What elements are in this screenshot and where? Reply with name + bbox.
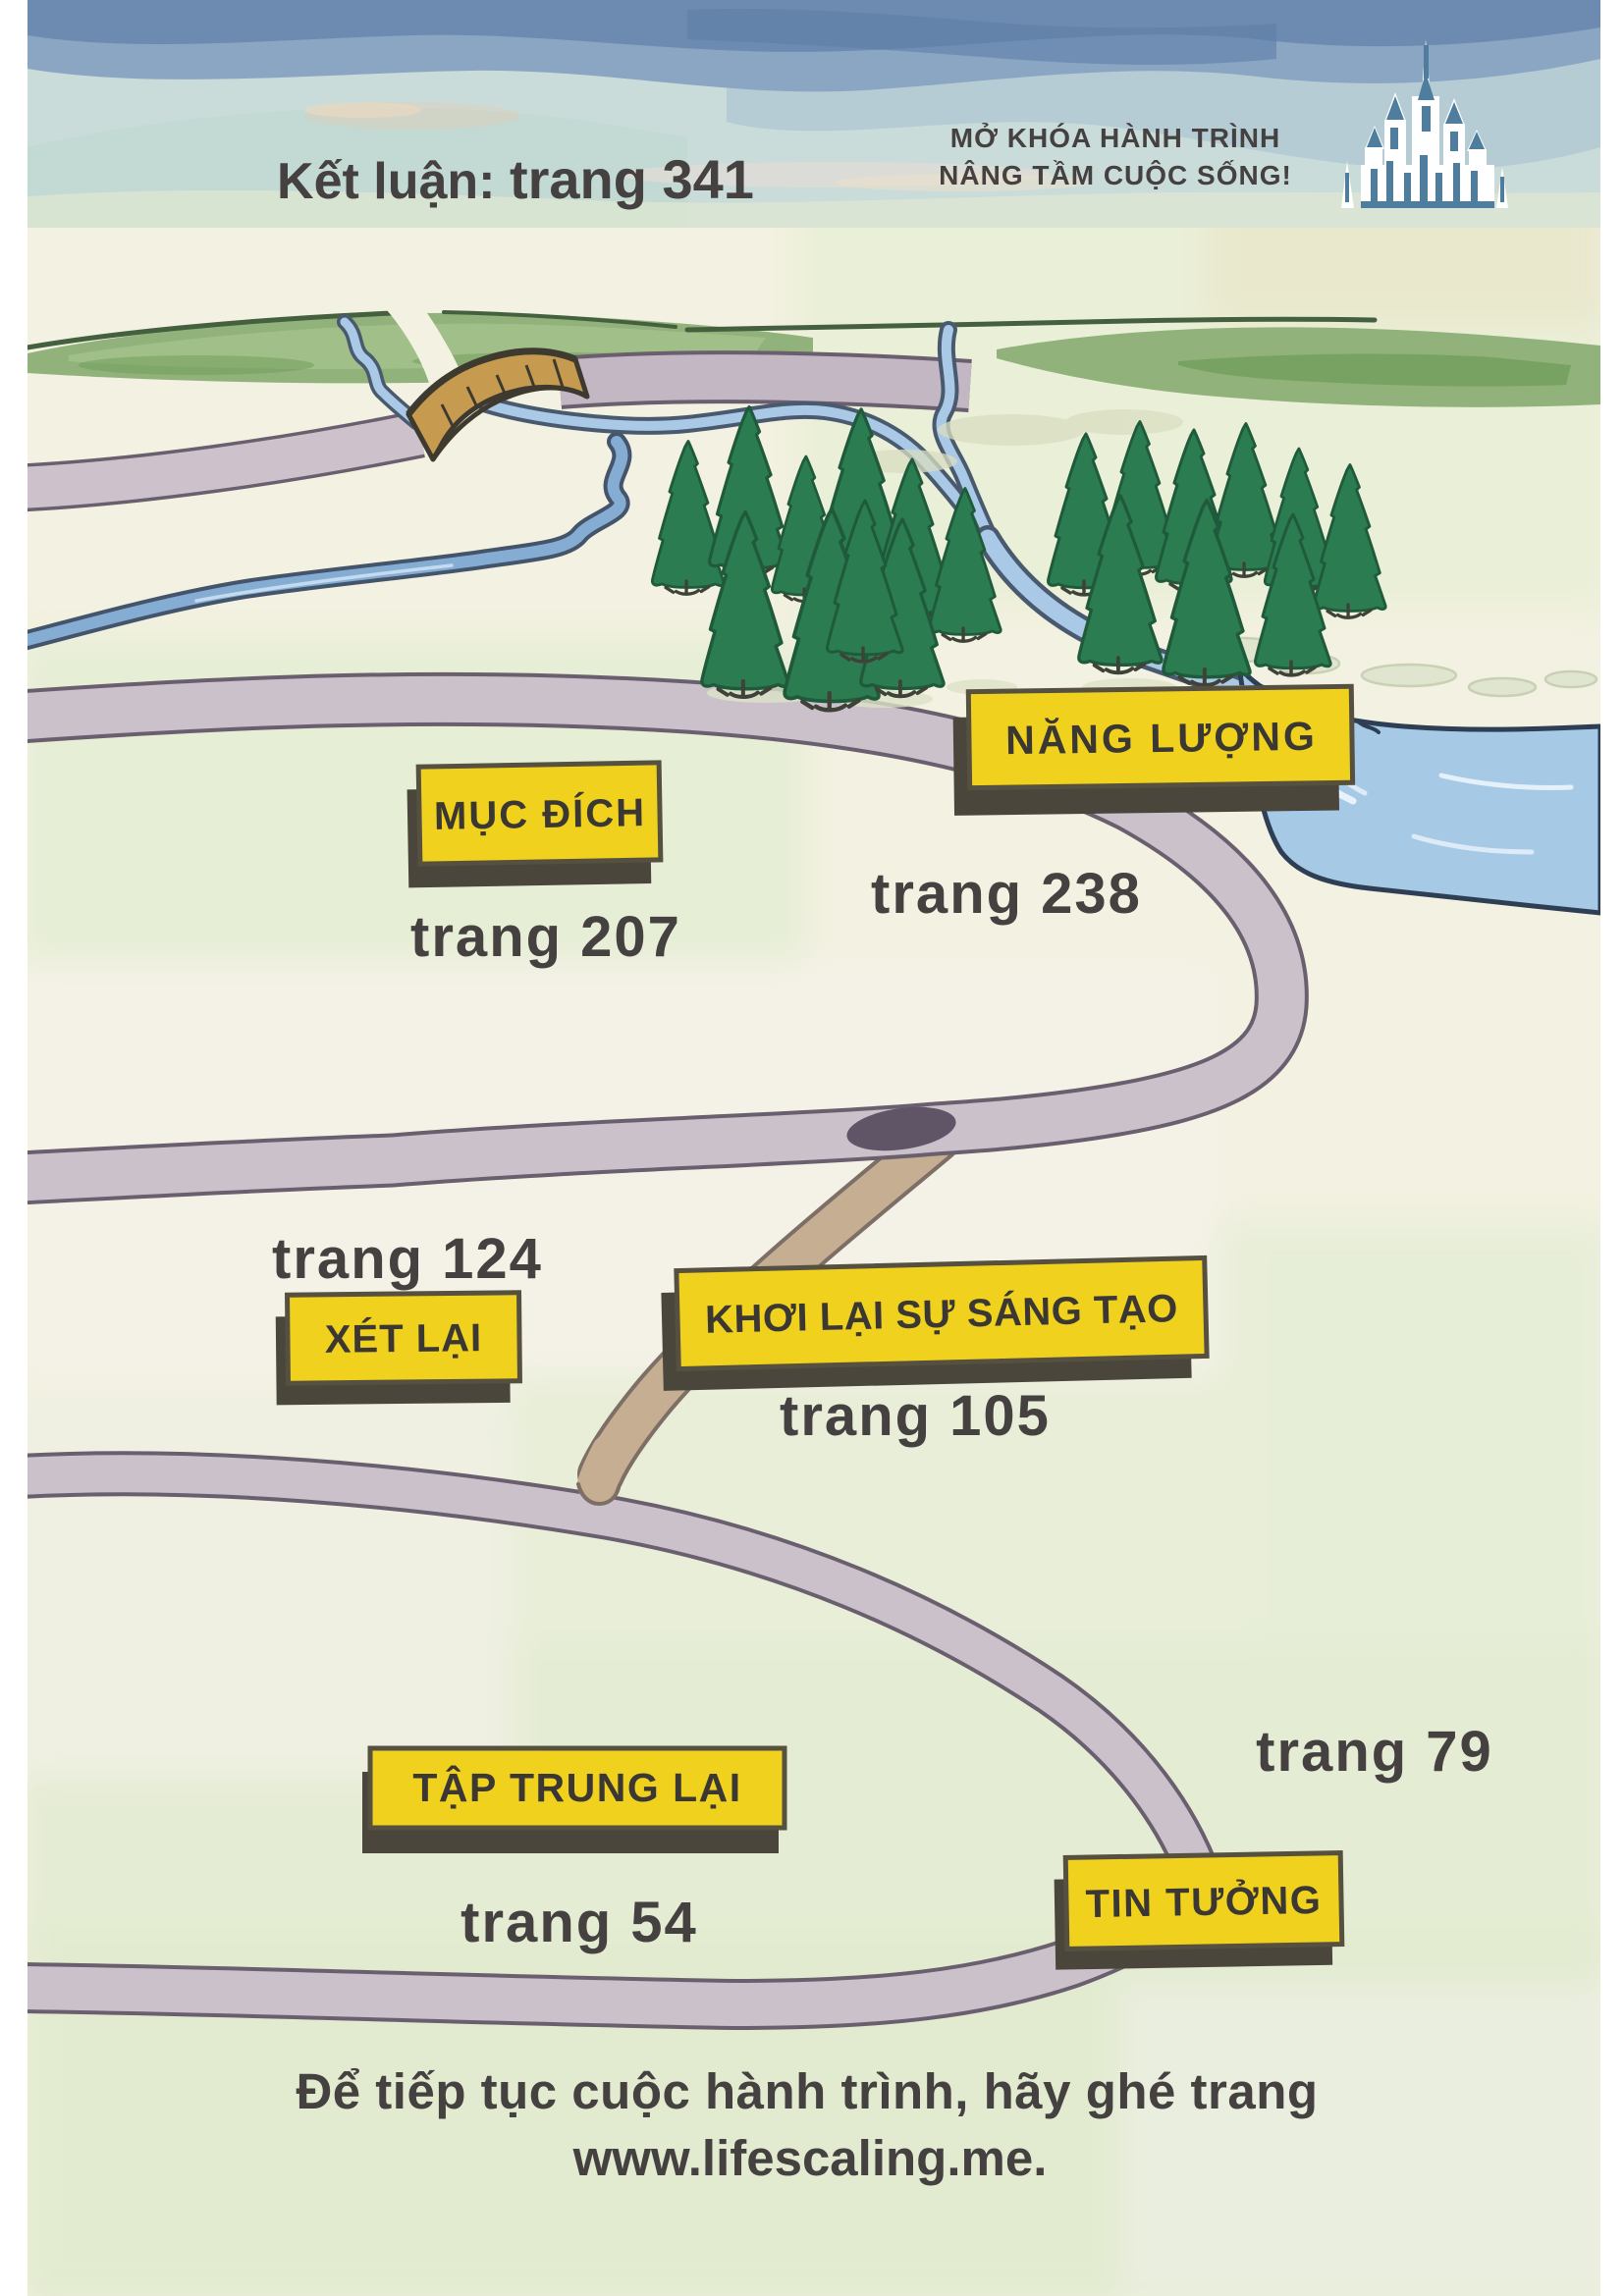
svg-text:trang 105: trang 105 bbox=[780, 1384, 1051, 1448]
svg-text:Kết luận: trang 341: Kết luận: trang 341 bbox=[277, 148, 754, 210]
svg-text:trang 207: trang 207 bbox=[410, 905, 681, 969]
svg-text:NĂNG LƯỢNG: NĂNG LƯỢNG bbox=[1005, 714, 1318, 763]
svg-text:trang 124: trang 124 bbox=[272, 1227, 543, 1291]
svg-text:MỞ KHÓA HÀNH TRÌNH: MỞ KHÓA HÀNH TRÌNH bbox=[950, 122, 1280, 153]
svg-text:trang 79: trang 79 bbox=[1256, 1720, 1493, 1784]
svg-text:MỤC ĐÍCH: MỤC ĐÍCH bbox=[434, 790, 647, 838]
svg-text:trang 54: trang 54 bbox=[460, 1891, 698, 1954]
svg-text:www.lifescaling.me.: www.lifescaling.me. bbox=[572, 2130, 1048, 2186]
svg-text:trang 238: trang 238 bbox=[871, 862, 1142, 926]
svg-text:TẬP TRUNG LẠI: TẬP TRUNG LẠI bbox=[412, 1765, 741, 1810]
svg-text:NÂNG TẦM CUỘC SỐNG!: NÂNG TẦM CUỘC SỐNG! bbox=[939, 159, 1292, 190]
svg-text:TIN TƯỞNG: TIN TƯỞNG bbox=[1085, 1877, 1323, 1926]
svg-text:Để tiếp tục cuộc hành trình, h: Để tiếp tục cuộc hành trình, hãy ghé tra… bbox=[296, 2063, 1318, 2119]
svg-text:XÉT LẠI: XÉT LẠI bbox=[325, 1315, 483, 1362]
